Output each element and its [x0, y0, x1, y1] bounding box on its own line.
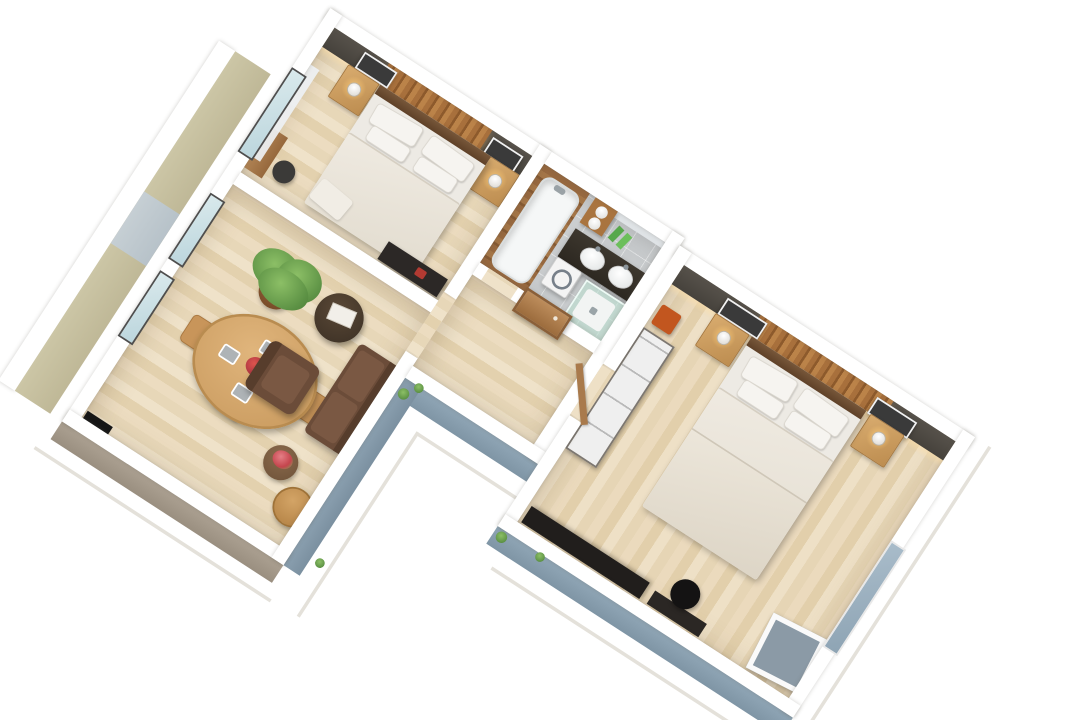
place-setting: [217, 343, 241, 366]
apartment-render: [0, 0, 1080, 720]
shrub-tuft: [313, 556, 326, 569]
floorplan: [0, 0, 1039, 720]
